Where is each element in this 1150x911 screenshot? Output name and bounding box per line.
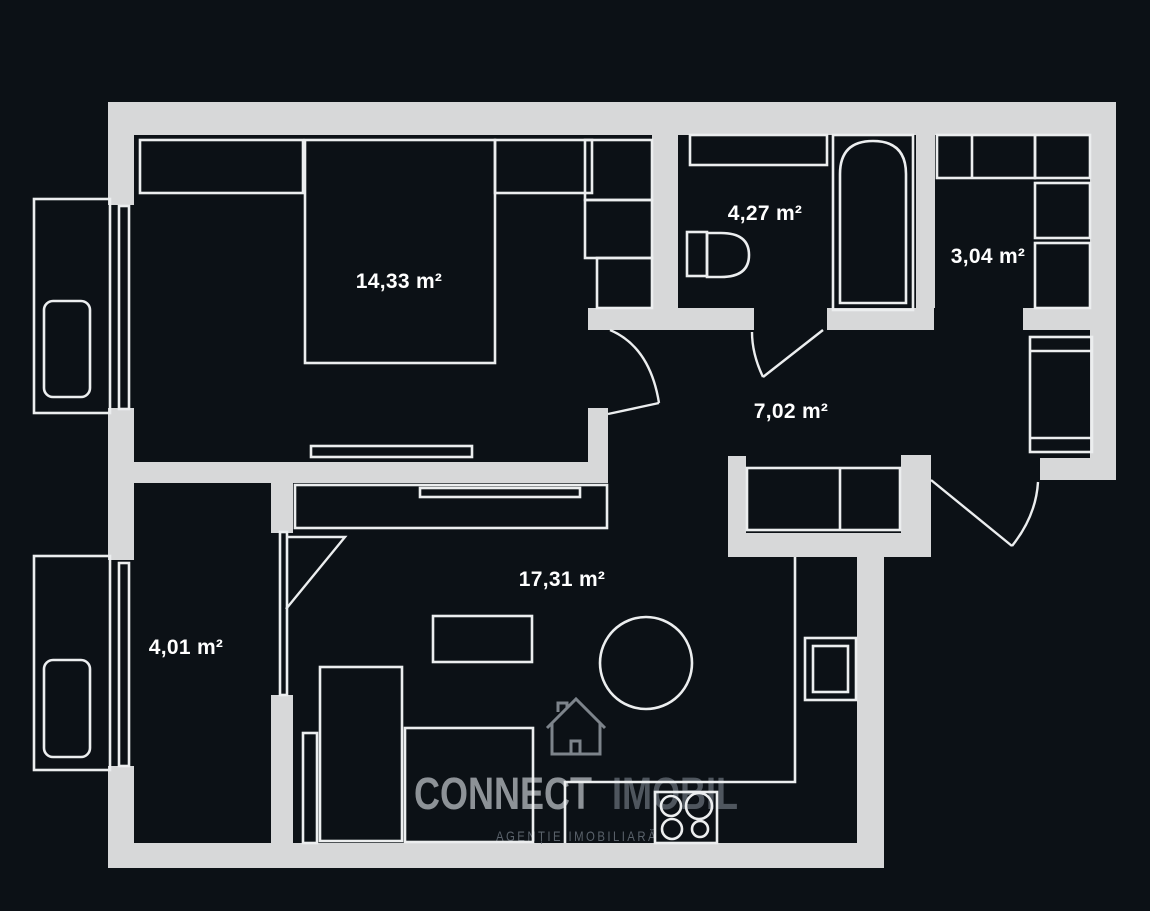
- tv-bedroom: [311, 446, 472, 457]
- wall-bath-dressing-divider: [916, 130, 935, 308]
- wall-bedroom-bottom: [108, 462, 608, 483]
- radiator: [1030, 337, 1092, 452]
- toilet-bowl: [707, 233, 749, 277]
- house-door: [571, 741, 580, 754]
- balcony-top-glazing: [119, 206, 129, 409]
- tv-living: [420, 488, 580, 497]
- house-icon: [547, 699, 605, 754]
- room-label-bedroom: 14,33 m²: [356, 270, 442, 293]
- kitchen-appliance-inner: [813, 646, 848, 692]
- bedroom-door-swing: [608, 330, 659, 414]
- wall-bath-left: [652, 130, 678, 308]
- partition-door-swing: [286, 537, 345, 609]
- watermark: CONNECT IMOBIL AGENȚIE IMOBILIARĂ: [414, 699, 738, 844]
- dressing-shelf-1: [1035, 135, 1090, 178]
- sofa-side: [303, 733, 317, 843]
- closet-section-2: [585, 200, 652, 258]
- house-body: [552, 723, 600, 754]
- wall-hall-stub-right: [901, 455, 931, 533]
- closet-section-3: [597, 258, 652, 308]
- bathroom-door-swing: [752, 330, 823, 377]
- wardrobe-left: [140, 140, 303, 193]
- bath-shelf: [690, 135, 827, 165]
- coffee-table: [433, 616, 532, 662]
- floor-plan-page: CONNECT IMOBIL AGENȚIE IMOBILIARĂ: [0, 0, 1150, 911]
- wall-left-top: [108, 102, 134, 205]
- wall-top: [108, 102, 1116, 135]
- hob-burner-4: [692, 821, 708, 837]
- wall-bath-bottom-left: [588, 308, 754, 330]
- balcony-top-window: [44, 301, 90, 397]
- house-roof: [547, 699, 605, 728]
- wall-partition-stub-bottom: [271, 695, 293, 868]
- bed: [305, 140, 495, 363]
- wall-right: [1090, 102, 1116, 480]
- floor-plan: CONNECT IMOBIL AGENȚIE IMOBILIARĂ: [0, 0, 1150, 911]
- wall-dressing-bottom: [1023, 308, 1116, 330]
- partition-glass: [280, 532, 287, 695]
- wall-left-mid: [108, 408, 134, 560]
- balcony-bottom-window: [44, 660, 90, 757]
- wall-bedroom-door-stub: [588, 408, 608, 462]
- room-label-bathroom: 4,27 m²: [728, 202, 802, 225]
- closet-section-1: [585, 140, 652, 200]
- room-label-dressing: 3,04 m²: [951, 245, 1025, 268]
- tv-unit: [295, 485, 607, 528]
- dressing-furniture: [937, 135, 1092, 452]
- dressing-shelf-2: [1035, 183, 1090, 238]
- hallway-furniture: [747, 468, 900, 530]
- wall-entrance-side: [1040, 458, 1096, 480]
- logo-text: CONNECT IMOBIL: [414, 768, 738, 819]
- entrance-door-swing: [931, 480, 1038, 546]
- wall-hall-bottom: [728, 533, 931, 557]
- dining-table: [600, 617, 692, 709]
- bathtub-inner: [840, 141, 906, 303]
- bedroom-furniture: [140, 140, 652, 457]
- wall-bottom: [108, 843, 884, 868]
- hall-closet: [747, 468, 900, 530]
- hob-burner-3: [662, 819, 682, 839]
- dressing-cabinet-top: [937, 135, 1035, 178]
- bathtub-outline: [833, 135, 913, 310]
- room-label-living-kitchen: 17,31 m²: [519, 568, 605, 591]
- wall-partition-stub-top: [271, 483, 293, 533]
- balcony-bottom-glazing: [119, 563, 129, 766]
- logo-secondary: IMOBIL: [612, 768, 738, 819]
- walls: [108, 102, 1116, 868]
- wall-hall-stub-left: [728, 456, 746, 533]
- room-label-small-room: 4,01 m²: [149, 636, 223, 659]
- wardrobe-right: [495, 140, 592, 193]
- room-label-hallway: 7,02 m²: [754, 400, 828, 423]
- dressing-shelf-3: [1035, 243, 1090, 308]
- wall-living-right: [857, 533, 884, 868]
- sofa-tall: [320, 667, 402, 841]
- toilet-tank: [687, 232, 707, 276]
